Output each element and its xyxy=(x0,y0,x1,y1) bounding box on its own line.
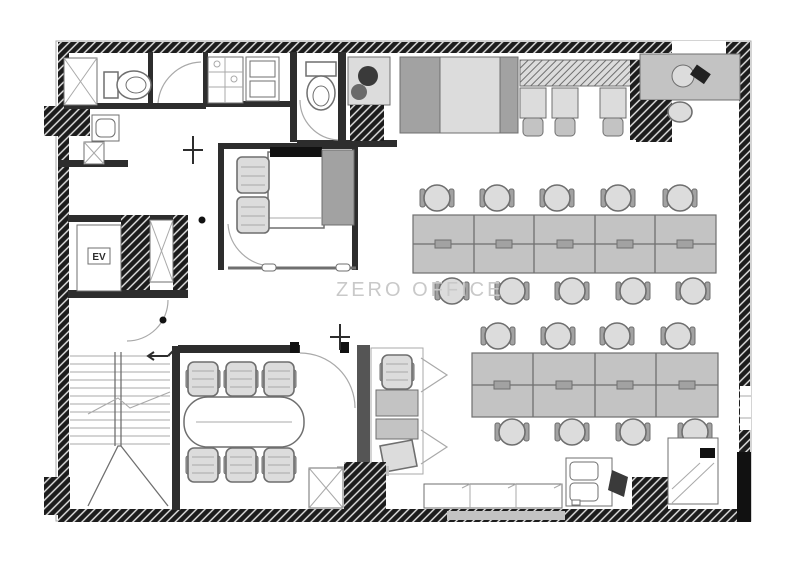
shaft-box-elevator xyxy=(150,220,173,282)
toilet-fixture-1 xyxy=(104,71,151,99)
door-stop-dot-2 xyxy=(160,317,167,324)
counter-stool xyxy=(555,118,575,136)
bench-row-lower xyxy=(472,323,718,445)
phone-booths xyxy=(357,345,447,474)
wall-protrusion-sw xyxy=(44,477,70,515)
conference-table xyxy=(184,397,304,447)
meeting-chair xyxy=(224,362,258,396)
wall-protrusion-left xyxy=(44,106,90,136)
copier-corner xyxy=(566,438,718,512)
counter-table xyxy=(520,88,546,118)
stair-direction-arrow xyxy=(148,349,175,360)
column-pantry xyxy=(350,105,384,141)
booth-door-swing-2 xyxy=(421,430,447,464)
meeting-chair xyxy=(224,448,258,482)
wall-bottom-gray-segment xyxy=(447,511,565,520)
door-arc-stall xyxy=(158,62,201,103)
wall-right xyxy=(739,42,750,522)
counter-stool xyxy=(523,118,543,136)
monitor xyxy=(700,448,715,458)
counter-stool xyxy=(603,118,623,136)
armchair-2 xyxy=(237,197,269,233)
booth-door-swing-1 xyxy=(421,358,447,392)
armchair-1 xyxy=(237,157,269,193)
wall-top xyxy=(58,42,750,53)
shaft-box-bottom xyxy=(309,468,343,508)
storage-block xyxy=(400,57,518,133)
toilet-fixture-2 xyxy=(306,62,336,110)
sink-round xyxy=(672,65,694,87)
counter-chair xyxy=(668,102,692,122)
meeting-chair xyxy=(262,448,296,482)
stair-break-line xyxy=(88,392,170,414)
bed xyxy=(268,147,354,228)
watermark-text: ZERO OFFICE xyxy=(336,279,503,301)
floor-plan: EV xyxy=(0,0,787,568)
sliding-door xyxy=(228,264,356,271)
nap-room xyxy=(199,143,359,271)
wall-top-gap xyxy=(672,41,726,53)
booth-chair xyxy=(380,355,414,389)
pantry xyxy=(348,57,390,141)
elevator-core: EV xyxy=(68,215,188,341)
counter-table xyxy=(600,88,626,118)
wall-thick-se xyxy=(737,452,751,522)
wall-right-recess xyxy=(740,386,751,430)
booth-desk-1 xyxy=(376,390,418,416)
copier xyxy=(566,458,612,506)
seating-counter xyxy=(520,60,640,86)
elevator-label: EV xyxy=(92,252,106,263)
open-office xyxy=(413,185,718,445)
meeting-chair xyxy=(186,448,220,482)
shaft-box-left xyxy=(84,142,104,164)
column-bottom-center xyxy=(344,462,386,512)
kitchen-counter xyxy=(636,54,740,142)
corner-desk xyxy=(668,438,718,504)
kitchenette-cabinet xyxy=(246,57,279,101)
counter-seating xyxy=(520,60,640,140)
meeting-chair xyxy=(186,362,220,396)
counter-table xyxy=(552,88,578,118)
staircase xyxy=(70,346,180,510)
door-arc-meeting-room xyxy=(300,353,355,408)
door-symbol-plus xyxy=(183,136,203,164)
booth-desk-2 xyxy=(376,419,418,439)
kitchenette-sink xyxy=(208,57,243,103)
meeting-room xyxy=(178,324,355,482)
door-stop-dot xyxy=(199,217,206,224)
wash-basin xyxy=(92,115,119,141)
service-shaft-bottom xyxy=(309,462,389,512)
column-ne xyxy=(636,100,672,142)
stair-landing-v xyxy=(88,446,168,506)
meeting-chair xyxy=(262,362,296,396)
credenza xyxy=(424,484,562,508)
column-se xyxy=(632,477,668,512)
